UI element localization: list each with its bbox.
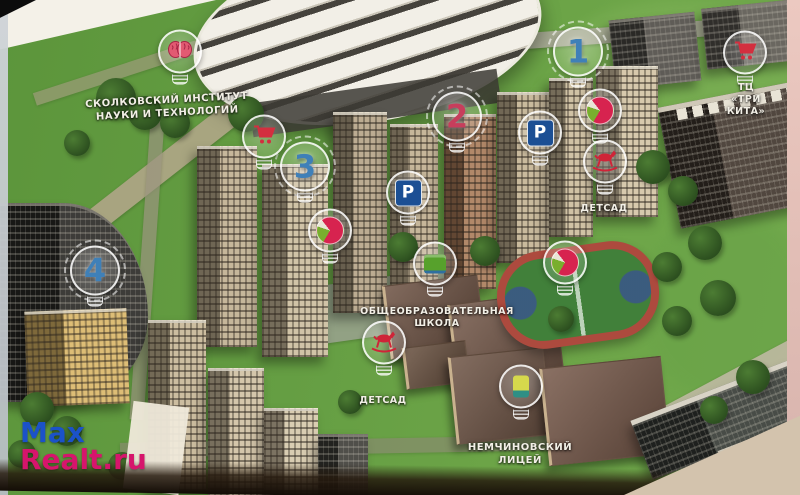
tree: [652, 252, 682, 282]
tree: [470, 236, 500, 266]
tree: [662, 306, 692, 336]
building: [197, 146, 257, 347]
marker-base: [172, 75, 188, 85]
tree: [548, 306, 574, 332]
beach-ball-icon: [551, 249, 579, 277]
tree: [688, 226, 722, 260]
school-book-icon: [424, 254, 446, 273]
marker-base: [322, 254, 338, 264]
page-edge-left: [0, 0, 8, 495]
parking-icon: P: [395, 179, 422, 206]
watermark: Max Realt.ru: [20, 420, 147, 473]
watermark-line2: Realt.ru: [20, 447, 147, 474]
label-mall: ТЦ «ТРИ КИТА»: [719, 82, 773, 118]
shopping-cart-icon: [252, 124, 276, 150]
building-1-number: 1: [567, 36, 589, 68]
building-3-number: 3: [294, 151, 316, 183]
marker-base: [376, 366, 392, 376]
marker-mall-tri-kita[interactable]: [723, 31, 767, 86]
masterplan-photo: СКОЛКОВСКИЙ ИНСТИТУТ НАУКИ И ТЕХНОЛОГИЙ …: [0, 0, 800, 495]
building-4-number: 4: [84, 255, 106, 287]
label-school: ОБЩЕОБРАЗОВАТЕЛЬНАЯ ШКОЛА: [360, 306, 514, 330]
label-kindergarten-north: ДЕТСАД: [580, 203, 627, 215]
beach-ball-icon: [586, 97, 614, 125]
tree: [700, 396, 728, 424]
marker-playground-northeast[interactable]: [578, 89, 622, 144]
marker-playground-stadium[interactable]: [543, 241, 587, 296]
rocking-horse-icon: [590, 148, 620, 176]
marker-building-4[interactable]: 4: [70, 246, 120, 307]
rocking-horse-icon: [369, 329, 399, 357]
marker-base: [557, 286, 573, 296]
marker-building-1[interactable]: 1: [553, 27, 603, 88]
marker-base: [400, 216, 416, 226]
tree: [700, 280, 736, 316]
marker-base: [256, 160, 272, 170]
marker-parking-east[interactable]: P: [518, 111, 562, 166]
marker-skolkovo-institute[interactable]: [158, 30, 202, 85]
marker-building-2[interactable]: 2: [432, 92, 482, 153]
label-kindergarten-south: ДЕТСАД: [359, 395, 406, 407]
label-lyceum: НЕМЧИНОВСКИЙ ЛИЦЕЙ: [468, 442, 572, 467]
tree: [668, 176, 698, 206]
marker-base: [427, 287, 443, 297]
marker-base: [532, 156, 548, 166]
building-2-number: 2: [446, 101, 468, 133]
marker-playground-center[interactable]: [308, 209, 352, 264]
marker-building-3[interactable]: 3: [280, 142, 330, 203]
marker-kindergarten-north[interactable]: [583, 140, 627, 195]
marker-school[interactable]: [413, 242, 457, 297]
tree: [636, 150, 670, 184]
shopping-cart-icon: [733, 40, 757, 66]
tree: [64, 130, 90, 156]
tree: [338, 390, 362, 414]
marker-store-west[interactable]: [242, 115, 286, 170]
brain-icon: [167, 40, 193, 64]
parking-icon: P: [527, 119, 554, 146]
tree: [736, 360, 770, 394]
lyceum-book-icon: [513, 376, 529, 398]
marker-base: [597, 185, 613, 195]
beach-ball-icon: [316, 217, 344, 245]
marker-base: [513, 410, 529, 420]
marker-lyceum[interactable]: [499, 365, 543, 420]
marker-parking-center[interactable]: P: [386, 171, 430, 226]
